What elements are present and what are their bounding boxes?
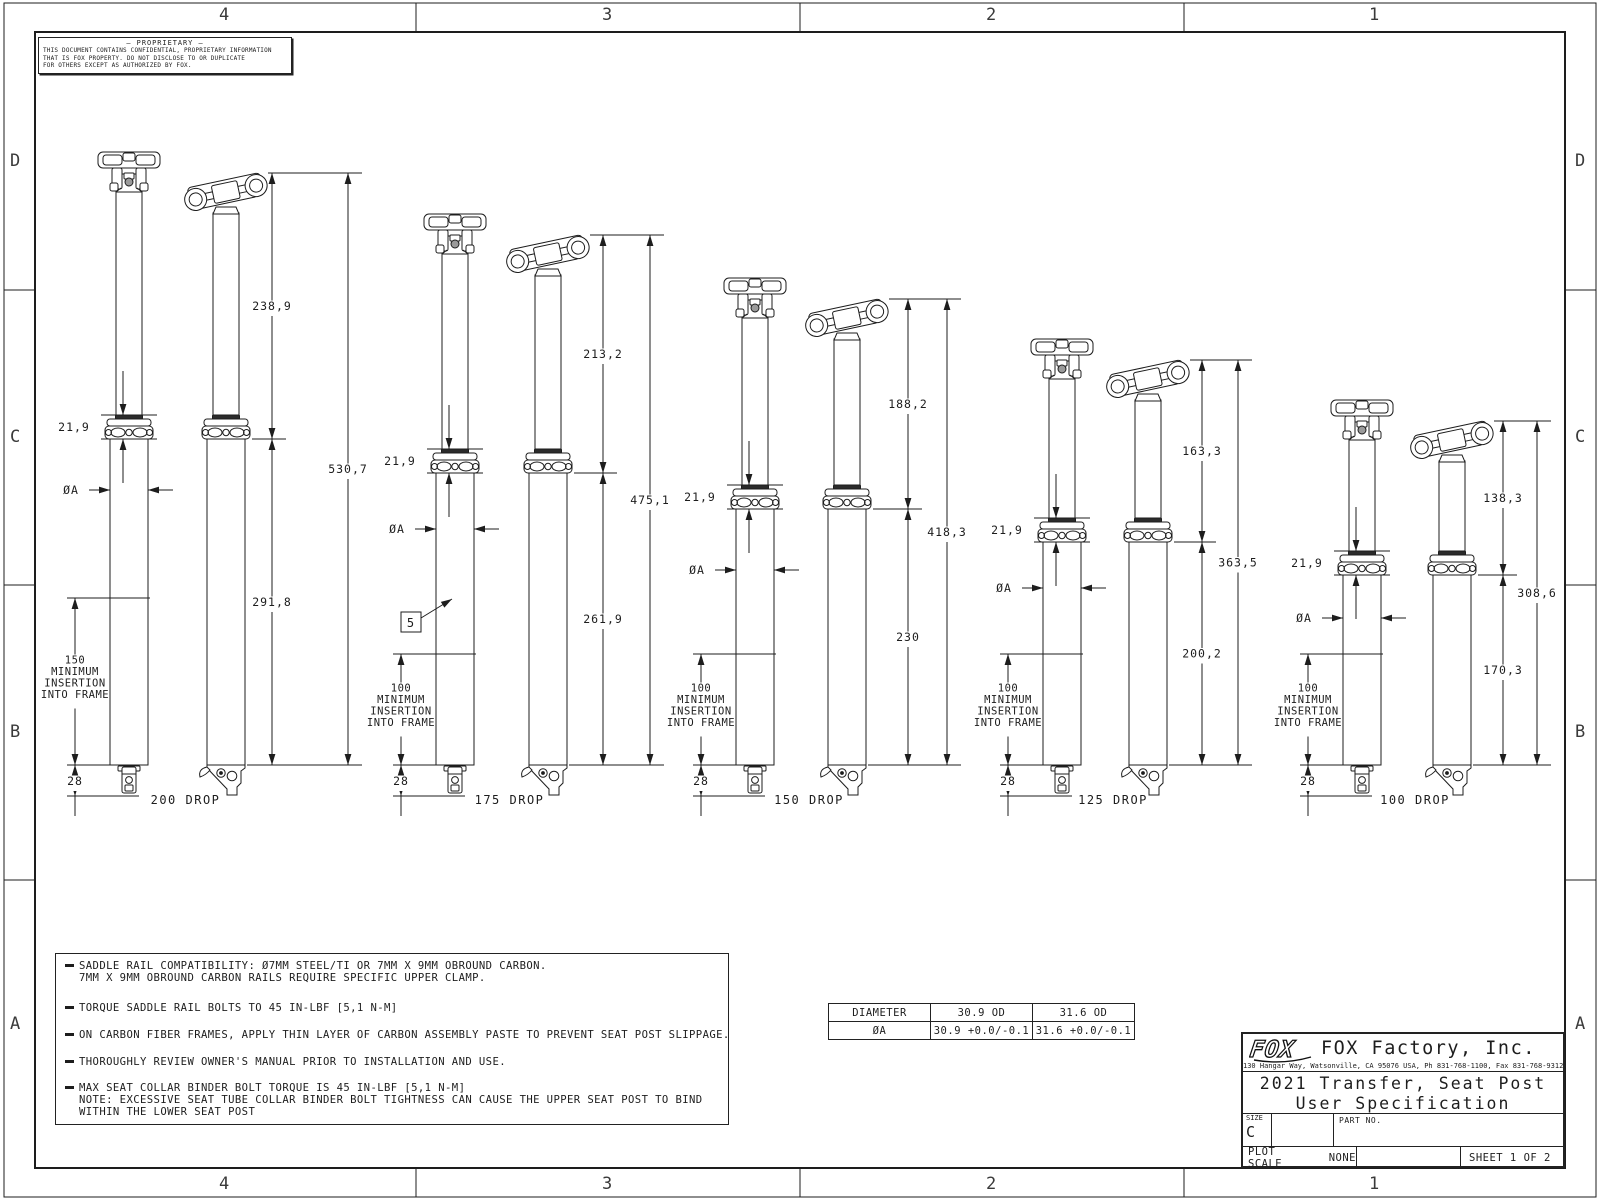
proprietary-line: THIS DOCUMENT CONTAINS CONFIDENTIAL, PRO… xyxy=(43,47,287,55)
svg-text:INSERTION: INSERTION xyxy=(670,706,731,718)
svg-text:175 DROP: 175 DROP xyxy=(475,793,545,807)
bullet-icon xyxy=(65,964,74,968)
note-item: MAX SEAT COLLAR BINDER BOLT TORQUE IS 45… xyxy=(65,1082,703,1119)
svg-text:ØA: ØA xyxy=(1296,611,1312,625)
svg-text:28: 28 xyxy=(393,774,409,788)
company-address: 130 Hangar Way, Watsonville, CA 95076 US… xyxy=(1243,1062,1563,1070)
svg-text:100: 100 xyxy=(691,683,711,695)
svg-text:MINIMUM: MINIMUM xyxy=(984,694,1032,706)
zone-label-left: A xyxy=(10,1014,21,1034)
svg-text:ØA: ØA xyxy=(389,522,405,536)
svg-text:INTO FRAME: INTO FRAME xyxy=(41,689,109,701)
svg-text:ØA: ØA xyxy=(996,581,1012,595)
svg-text:213,2: 213,2 xyxy=(583,347,623,361)
zone-label-top: 1 xyxy=(1369,5,1380,25)
svg-text:308,6: 308,6 xyxy=(1517,586,1557,600)
svg-text:MINIMUM: MINIMUM xyxy=(1284,694,1332,706)
svg-text:28: 28 xyxy=(693,774,709,788)
svg-text:163,3: 163,3 xyxy=(1182,444,1222,458)
zone-label-right: A xyxy=(1575,1014,1586,1034)
diameter-table-cell: DIAMETER xyxy=(829,1004,931,1022)
seatpost-variant-100 xyxy=(1300,400,1551,816)
fox-logo-text: FOX xyxy=(1249,1037,1297,1063)
size-label: SIZE xyxy=(1246,1114,1271,1122)
svg-text:MINIMUM: MINIMUM xyxy=(51,666,99,678)
zone-label-left: C xyxy=(10,427,21,447)
zone-label-bottom: 1 xyxy=(1369,1174,1380,1194)
note-item: SADDLE RAIL COMPATIBILITY: Ø7MM STEEL/TI… xyxy=(65,960,547,984)
note-line: THOROUGHLY REVIEW OWNER'S MANUAL PRIOR T… xyxy=(65,1056,506,1068)
svg-text:ØA: ØA xyxy=(689,563,705,577)
svg-text:200,2: 200,2 xyxy=(1182,647,1222,661)
svg-text:21,9: 21,9 xyxy=(1291,556,1323,570)
svg-text:INSERTION: INSERTION xyxy=(977,706,1038,718)
svg-text:21,9: 21,9 xyxy=(684,490,716,504)
seatpost-variant-125 xyxy=(1000,339,1252,816)
zone-label-right: D xyxy=(1575,151,1586,171)
svg-text:150: 150 xyxy=(65,655,85,667)
proprietary-notice: — PROPRIETARY — THIS DOCUMENT CONTAINS C… xyxy=(38,37,292,74)
plot-scale-value: NONE xyxy=(1329,1152,1356,1164)
zone-label-top: 3 xyxy=(602,5,613,25)
company-name: FOX Factory, Inc. xyxy=(1321,1038,1536,1059)
bullet-icon xyxy=(65,1086,74,1090)
svg-text:INSERTION: INSERTION xyxy=(1277,706,1338,718)
svg-text:170,3: 170,3 xyxy=(1483,663,1523,677)
svg-text:200 DROP: 200 DROP xyxy=(151,793,221,807)
title-block-header: FOX FOX Factory, Inc. 130 Hangar Way, Wa… xyxy=(1243,1034,1563,1072)
svg-text:475,1: 475,1 xyxy=(630,493,670,507)
svg-text:28: 28 xyxy=(67,774,83,788)
bullet-icon xyxy=(65,1033,74,1037)
note-line: NOTE: EXCESSIVE SEAT TUBE COLLAR BINDER … xyxy=(65,1094,703,1106)
note-line: TORQUE SADDLE RAIL BOLTS TO 45 IN-LBF [5… xyxy=(65,1002,398,1014)
zone-label-left: B xyxy=(10,722,21,742)
svg-text:100 DROP: 100 DROP xyxy=(1380,793,1450,807)
svg-text:188,2: 188,2 xyxy=(888,397,928,411)
note-item: TORQUE SADDLE RAIL BOLTS TO 45 IN-LBF [5… xyxy=(65,1002,398,1014)
seatpost-variant-150 xyxy=(693,278,961,816)
svg-text:21,9: 21,9 xyxy=(991,523,1023,537)
size-value: C xyxy=(1246,1123,1271,1141)
note-item: THOROUGHLY REVIEW OWNER'S MANUAL PRIOR T… xyxy=(65,1056,506,1068)
diameter-table-cell: 30.9 +0.0/-0.1 xyxy=(931,1022,1033,1040)
fox-logo: FOX xyxy=(1249,1036,1317,1064)
svg-text:100: 100 xyxy=(1298,683,1318,695)
svg-text:28: 28 xyxy=(1000,774,1016,788)
diameter-table-value-row: ØA30.9 +0.0/-0.131.6 +0.0/-0.1 xyxy=(829,1022,1135,1040)
zone-label-right: C xyxy=(1575,427,1586,447)
svg-text:125 DROP: 125 DROP xyxy=(1078,793,1148,807)
svg-text:28: 28 xyxy=(1300,774,1316,788)
meta-empty-cell xyxy=(1272,1114,1334,1146)
footer-empty-cell xyxy=(1357,1147,1461,1168)
svg-text:INTO FRAME: INTO FRAME xyxy=(1274,717,1342,729)
seatpost-variant-200 xyxy=(67,152,362,816)
svg-text:MINIMUM: MINIMUM xyxy=(677,694,725,706)
plot-scale-cell: PLOT SCALE NONE xyxy=(1243,1147,1357,1168)
svg-text:INTO FRAME: INTO FRAME xyxy=(974,717,1042,729)
diameter-table-cell: 31.6 +0.0/-0.1 xyxy=(1033,1022,1135,1040)
note-line: 7MM X 9MM OBROUND CARBON RAILS REQUIRE S… xyxy=(65,972,547,984)
svg-text:100: 100 xyxy=(998,683,1018,695)
svg-text:138,3: 138,3 xyxy=(1483,491,1523,505)
notes-list: SADDLE RAIL COMPATIBILITY: Ø7MM STEEL/TI… xyxy=(55,953,729,1125)
bullet-icon xyxy=(65,1006,74,1010)
svg-text:ØA: ØA xyxy=(63,483,79,497)
svg-text:363,5: 363,5 xyxy=(1218,556,1258,570)
diameter-table-cell: ØA xyxy=(829,1022,931,1040)
zone-label-bottom: 4 xyxy=(219,1174,230,1194)
title-block: FOX FOX Factory, Inc. 130 Hangar Way, Wa… xyxy=(1241,1032,1565,1168)
diameter-table: DIAMETER30.9 OD31.6 ODØA30.9 +0.0/-0.131… xyxy=(828,1003,1135,1040)
diameter-table-cell: 31.6 OD xyxy=(1033,1004,1135,1022)
svg-text:INSERTION: INSERTION xyxy=(370,706,431,718)
svg-text:100: 100 xyxy=(391,683,411,695)
proprietary-title: — PROPRIETARY — xyxy=(43,39,287,47)
zone-label-bottom: 3 xyxy=(602,1174,613,1194)
svg-text:238,9: 238,9 xyxy=(252,299,292,313)
svg-text:230: 230 xyxy=(896,630,920,644)
size-cell: SIZE C xyxy=(1243,1114,1272,1146)
zone-label-bottom: 2 xyxy=(986,1174,997,1194)
svg-text:21,9: 21,9 xyxy=(384,454,416,468)
note-line: MAX SEAT COLLAR BINDER BOLT TORQUE IS 45… xyxy=(65,1082,703,1094)
svg-text:INTO FRAME: INTO FRAME xyxy=(367,717,435,729)
zone-label-left: D xyxy=(10,151,21,171)
note-line: WITHIN THE LOWER SEAT POST xyxy=(65,1106,703,1118)
diameter-table-header-row: DIAMETER30.9 OD31.6 OD xyxy=(829,1004,1135,1022)
drawing-title: 2021 Transfer, Seat Post User Specificat… xyxy=(1243,1072,1563,1114)
svg-text:MINIMUM: MINIMUM xyxy=(377,694,425,706)
svg-text:INTO FRAME: INTO FRAME xyxy=(667,717,735,729)
bullet-icon xyxy=(65,1060,74,1064)
svg-text:418,3: 418,3 xyxy=(927,525,967,539)
title-block-meta: SIZE C PART NO. xyxy=(1243,1114,1563,1147)
svg-text:5: 5 xyxy=(407,616,415,630)
drawing-sheet: 238,9291,8530,721,9ØA150MINIMUMINSERTION… xyxy=(0,0,1600,1200)
svg-text:530,7: 530,7 xyxy=(328,462,368,476)
zone-label-top: 2 xyxy=(986,5,997,25)
svg-text:291,8: 291,8 xyxy=(252,595,292,609)
note-line: SADDLE RAIL COMPATIBILITY: Ø7MM STEEL/TI… xyxy=(65,960,547,972)
proprietary-line: THAT IS FOX PROPERTY. DO NOT DISCLOSE TO… xyxy=(43,55,287,63)
title-block-footer: PLOT SCALE NONE SHEET 1 OF 2 xyxy=(1243,1147,1563,1168)
svg-text:21,9: 21,9 xyxy=(58,420,90,434)
diameter-table-cell: 30.9 OD xyxy=(931,1004,1033,1022)
svg-text:261,9: 261,9 xyxy=(583,612,623,626)
sheet-number: SHEET 1 OF 2 xyxy=(1461,1147,1563,1168)
proprietary-line: FOR OTHERS EXCEPT AS AUTHORIZED BY FOX. xyxy=(43,62,287,70)
note-line: ON CARBON FIBER FRAMES, APPLY THIN LAYER… xyxy=(65,1029,730,1041)
plot-scale-label: PLOT SCALE xyxy=(1248,1146,1316,1170)
part-no-label: PART NO. xyxy=(1334,1114,1563,1146)
zone-label-right: B xyxy=(1575,722,1586,742)
zone-label-top: 4 xyxy=(219,5,230,25)
svg-text:150 DROP: 150 DROP xyxy=(774,793,844,807)
note-item: ON CARBON FIBER FRAMES, APPLY THIN LAYER… xyxy=(65,1029,730,1041)
drawing-title-line1: 2021 Transfer, Seat Post xyxy=(1243,1074,1563,1094)
drawing-title-line2: User Specification xyxy=(1243,1094,1563,1114)
svg-text:INSERTION: INSERTION xyxy=(44,678,105,690)
